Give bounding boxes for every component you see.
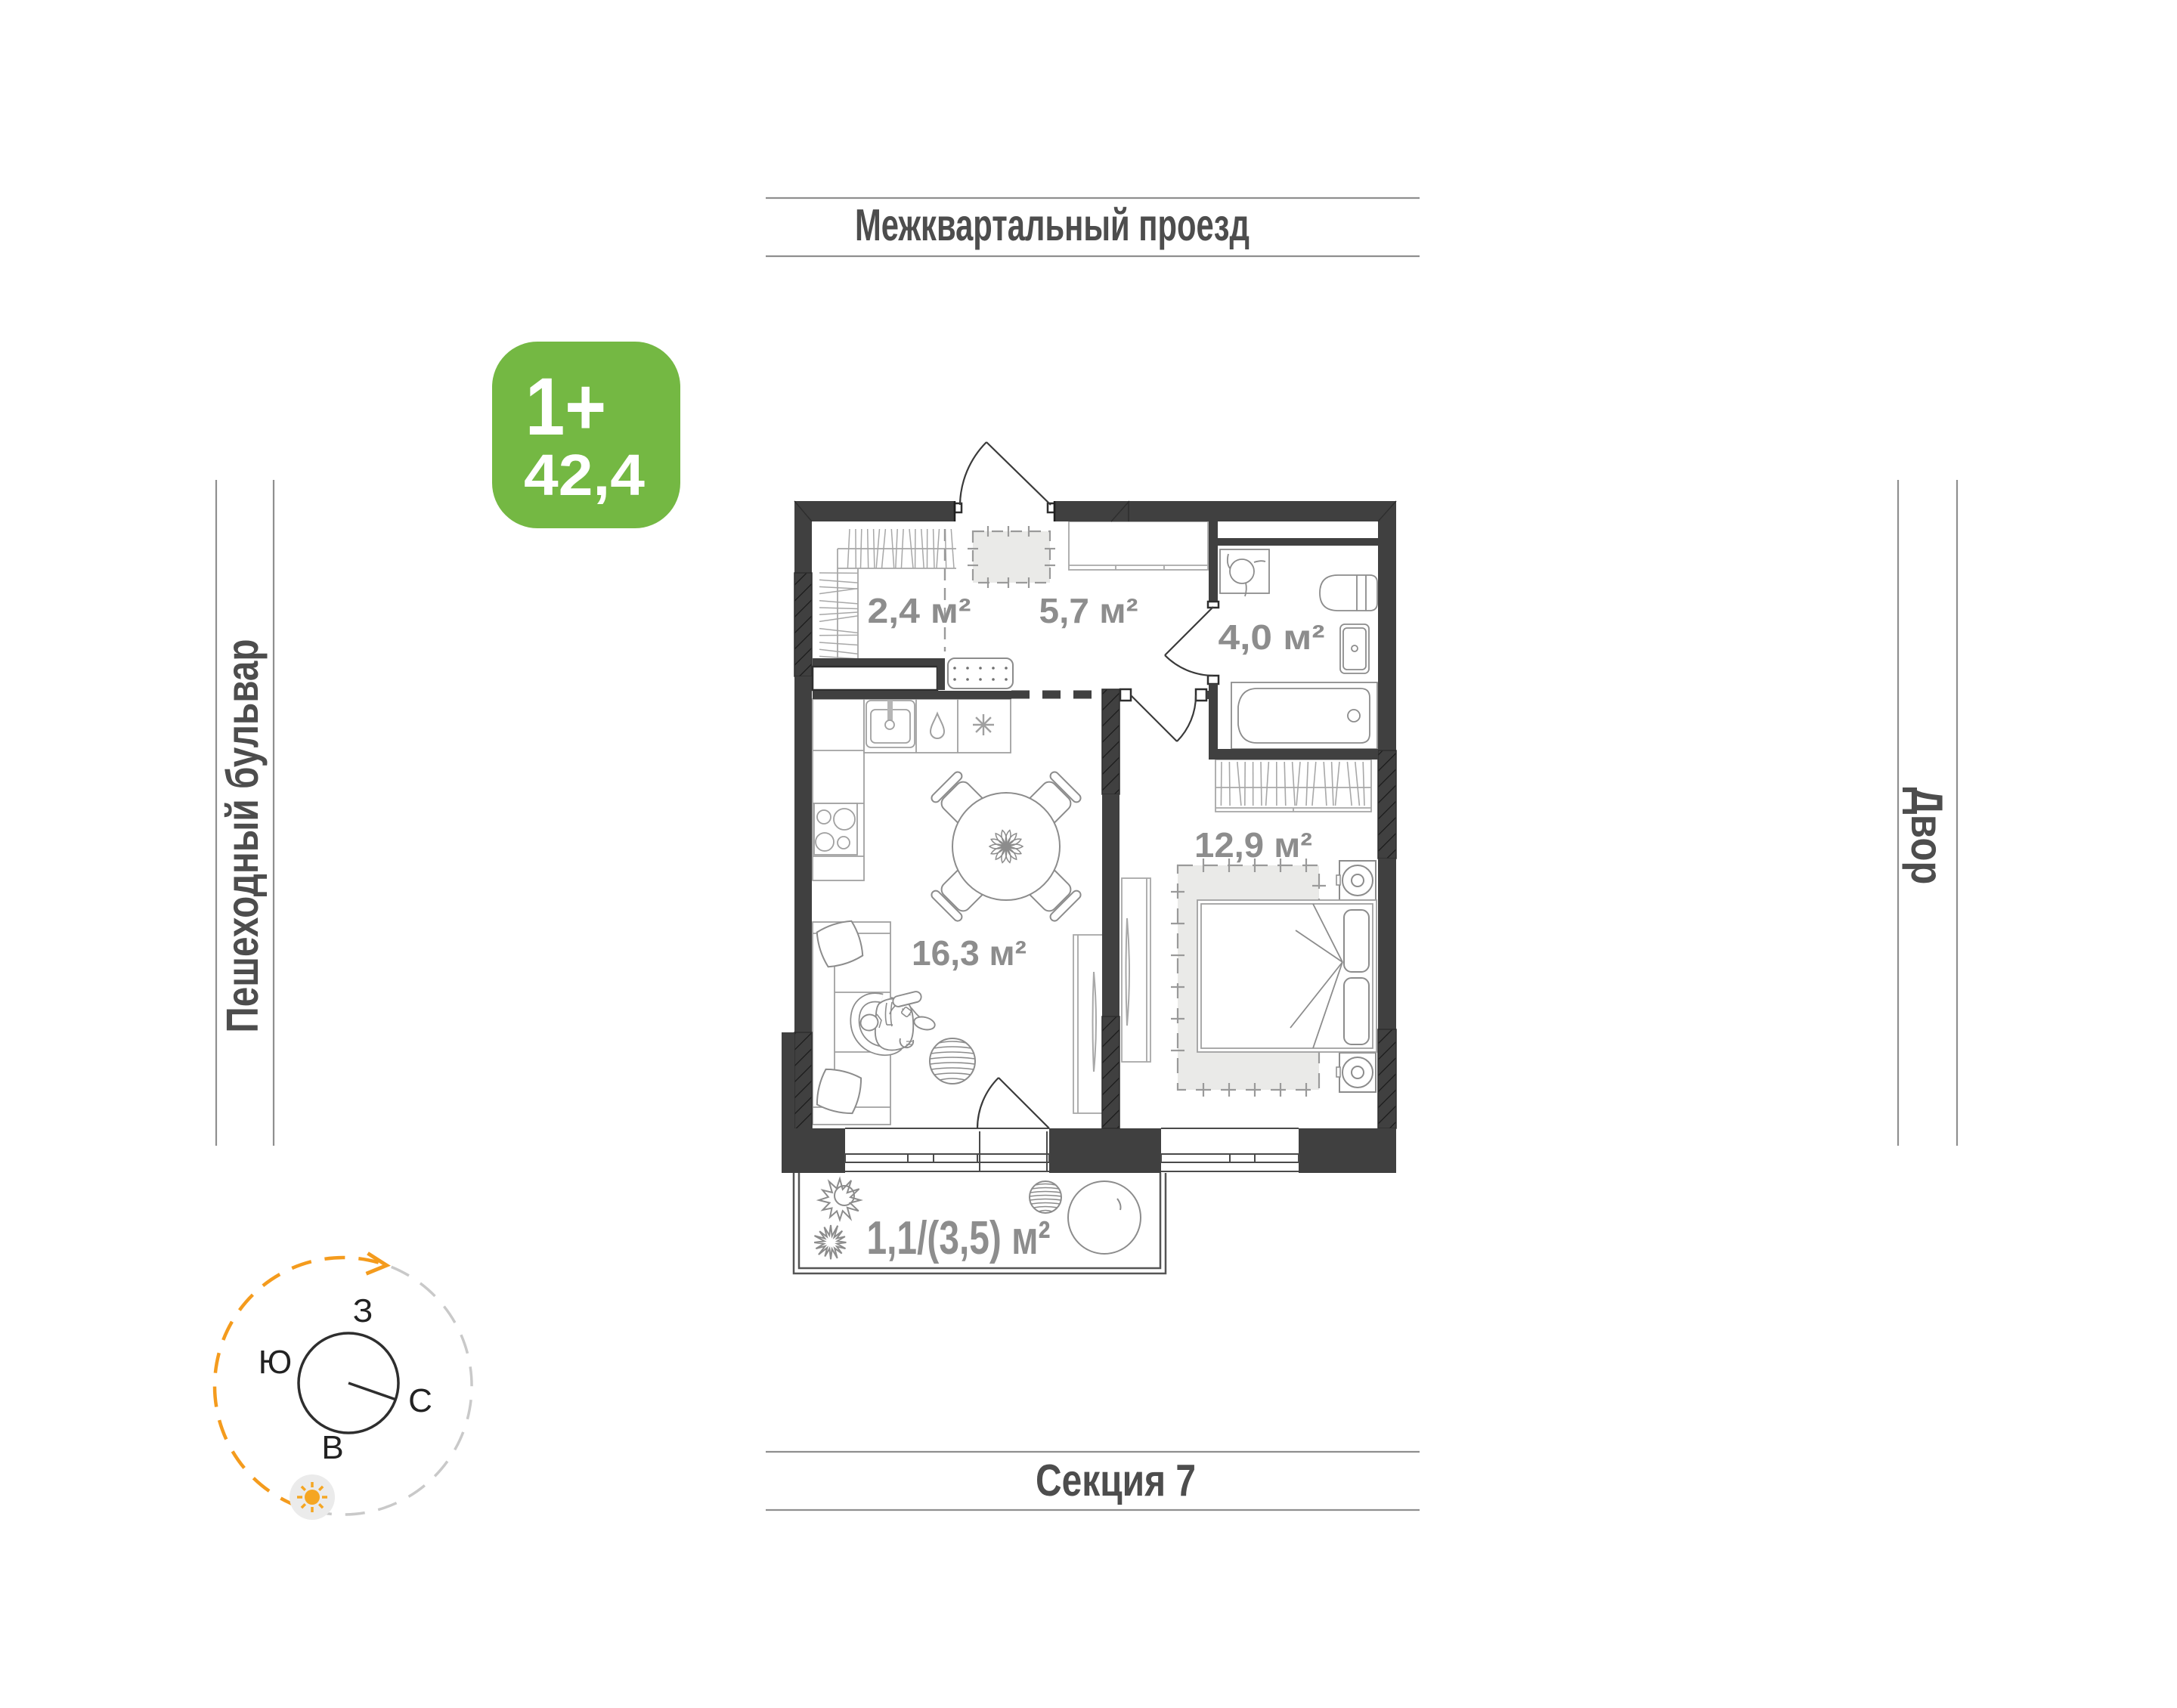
svg-text:Ю: Ю xyxy=(259,1344,292,1381)
svg-text:42,4: 42,4 xyxy=(524,443,645,508)
svg-text:Межквартальный проезд: Межквартальный проезд xyxy=(855,200,1250,250)
svg-text:1,1/(3,5) м²: 1,1/(3,5) м² xyxy=(867,1212,1051,1264)
svg-text:Пешеходный бульвар: Пешеходный бульвар xyxy=(218,639,268,1033)
svg-text:2,4 м²: 2,4 м² xyxy=(868,591,971,630)
svg-text:С: С xyxy=(408,1382,432,1419)
svg-text:4,0 м²: 4,0 м² xyxy=(1219,617,1325,657)
svg-text:В: В xyxy=(321,1429,343,1466)
svg-text:5,7 м²: 5,7 м² xyxy=(1039,591,1138,630)
svg-text:12,9 м²: 12,9 м² xyxy=(1194,825,1312,865)
svg-text:Секция 7: Секция 7 xyxy=(1036,1456,1196,1505)
svg-text:З: З xyxy=(353,1292,373,1329)
svg-text:16,3 м²: 16,3 м² xyxy=(912,933,1027,973)
svg-text:1+: 1+ xyxy=(525,360,606,452)
svg-text:Двор: Двор xyxy=(1902,787,1952,885)
